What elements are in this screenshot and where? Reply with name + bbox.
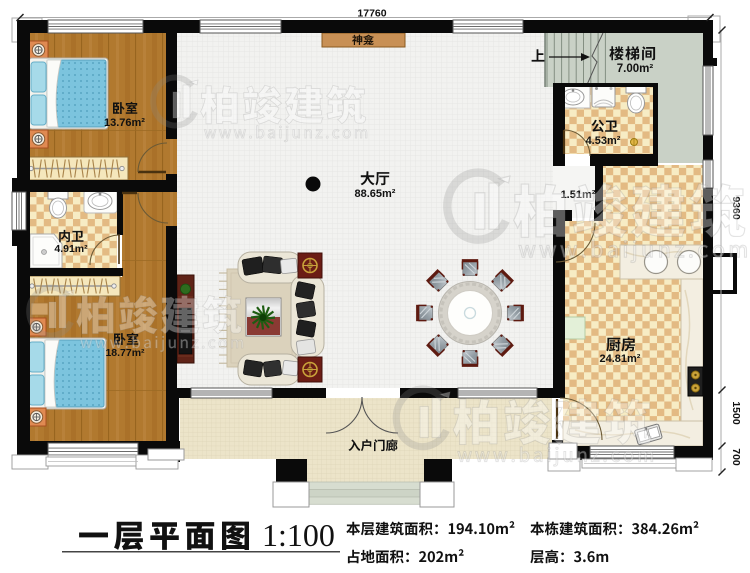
svg-text:700: 700 xyxy=(730,448,742,466)
svg-text:88.65m²: 88.65m² xyxy=(355,188,396,200)
svg-text:17760: 17760 xyxy=(357,8,386,20)
svg-text:4.91m²: 4.91m² xyxy=(54,243,88,255)
svg-text:4.53m²: 4.53m² xyxy=(586,135,621,147)
svg-text:13.76m²: 13.76m² xyxy=(104,117,145,129)
svg-text:7.00m²: 7.00m² xyxy=(617,63,654,75)
svg-text:1500: 1500 xyxy=(730,401,742,425)
svg-text:1:100: 1:100 xyxy=(262,517,335,553)
svg-text:24.81m²: 24.81m² xyxy=(600,353,641,365)
svg-text:18.77m²: 18.77m² xyxy=(105,347,145,359)
